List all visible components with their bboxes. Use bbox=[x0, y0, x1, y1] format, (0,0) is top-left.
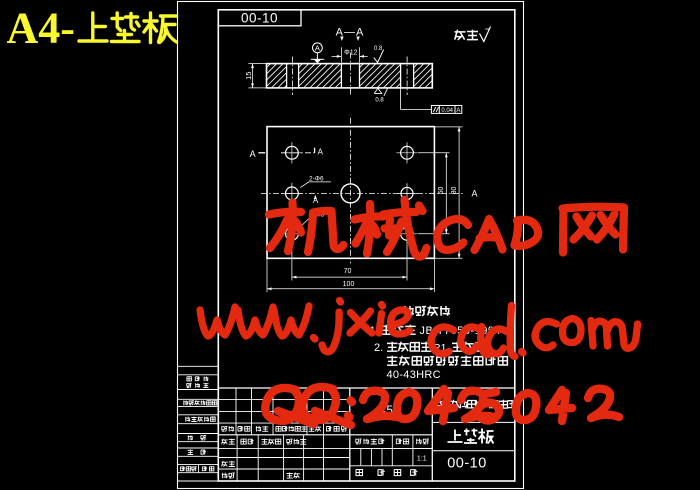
svg-text:1:1: 1:1 bbox=[417, 456, 427, 463]
svg-text:00-10: 00-10 bbox=[447, 456, 487, 472]
svg-text:A: A bbox=[250, 149, 256, 159]
svg-text:100: 100 bbox=[343, 281, 355, 288]
svg-text:70: 70 bbox=[344, 268, 352, 275]
svg-text:0.04: 0.04 bbox=[441, 108, 453, 114]
svg-text:0.8: 0.8 bbox=[374, 46, 383, 52]
svg-text:80: 80 bbox=[451, 187, 458, 195]
svg-text:A: A bbox=[471, 189, 477, 199]
svg-text:Φ12: Φ12 bbox=[344, 49, 357, 56]
svg-text:A: A bbox=[456, 108, 460, 114]
svg-text:A—A: A—A bbox=[336, 27, 365, 39]
svg-text:40-43HRC: 40-43HRC bbox=[387, 369, 441, 381]
svg-text:A: A bbox=[315, 44, 320, 53]
svg-text:0.8: 0.8 bbox=[375, 98, 384, 104]
svg-text:15: 15 bbox=[244, 72, 253, 80]
svg-text:A: A bbox=[318, 148, 324, 157]
svg-text:50: 50 bbox=[438, 187, 445, 195]
svg-text:2-Φ6: 2-Φ6 bbox=[309, 176, 324, 183]
svg-text:00-10: 00-10 bbox=[241, 11, 278, 26]
svg-text:A4-: A4- bbox=[7, 4, 75, 53]
svg-text:2.: 2. bbox=[374, 342, 383, 354]
